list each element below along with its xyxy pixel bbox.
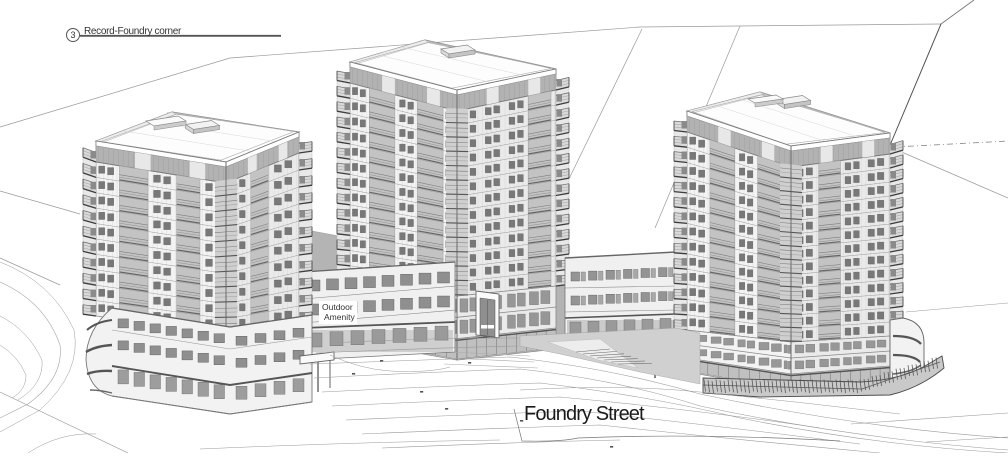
svg-text:Foundry Street: Foundry Street [524,403,645,425]
svg-text:3: 3 [70,30,75,40]
svg-text:Record-Foundry corner: Record-Foundry corner [84,26,182,37]
svg-text:Amenity: Amenity [324,312,355,322]
svg-text:Outdoor: Outdoor [322,302,353,312]
